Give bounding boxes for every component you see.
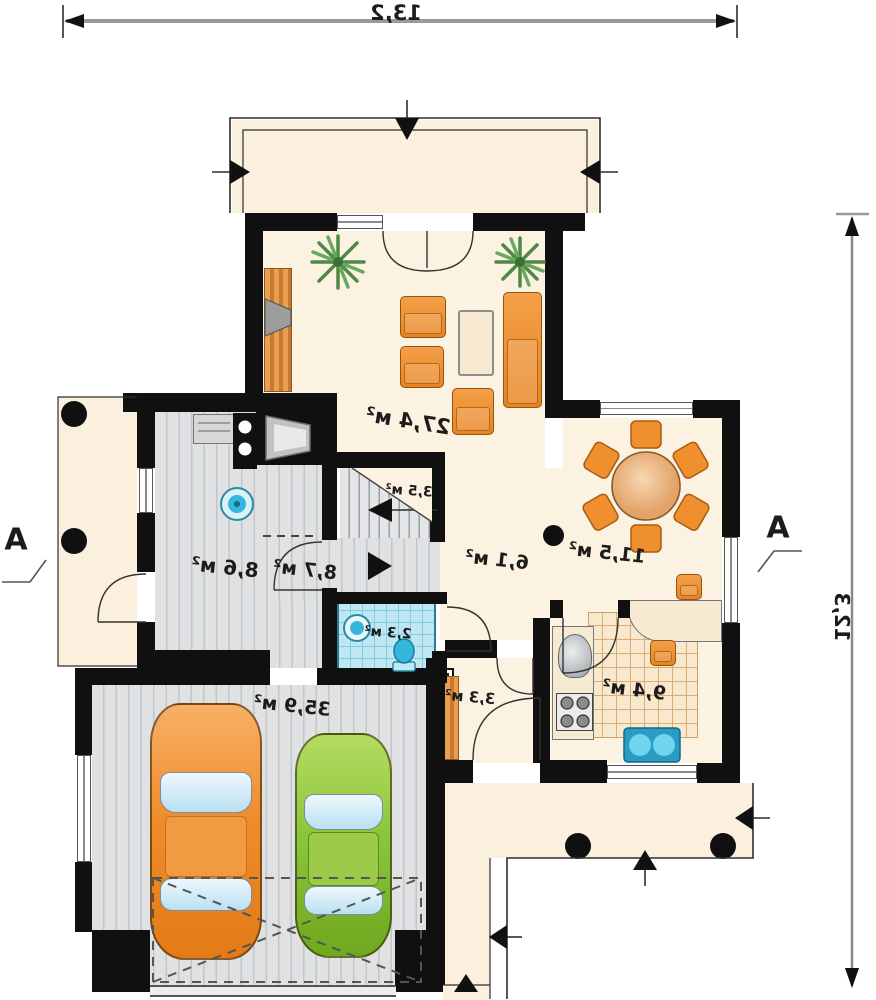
tv-icon	[265, 299, 291, 336]
dimension-top-label: 13,2	[370, 1, 422, 25]
washing-machine-icon	[221, 488, 253, 520]
floor-plan: 13,2 12,3 A A 27,4 м² 8,6 м² 8,7 м² 3,5 …	[0, 0, 876, 1000]
kitchen-sink-icon	[624, 728, 680, 762]
section-marker-left: A	[4, 523, 27, 558]
room-label-bathroom: 2,3 м²	[364, 623, 412, 642]
utility-worktop-lines	[198, 423, 230, 431]
room-label-stairs: 3,5 м²	[385, 481, 433, 500]
plan-linework	[0, 0, 876, 1000]
plant-icon	[312, 236, 364, 288]
dimension-right-label: 12,3	[830, 592, 854, 641]
stove-burners	[561, 697, 589, 727]
plant-icon	[496, 238, 544, 286]
dining-table	[581, 421, 710, 552]
section-marker-right: A	[766, 511, 789, 546]
toilet-icon	[393, 639, 415, 671]
boiler-dials	[239, 421, 252, 456]
